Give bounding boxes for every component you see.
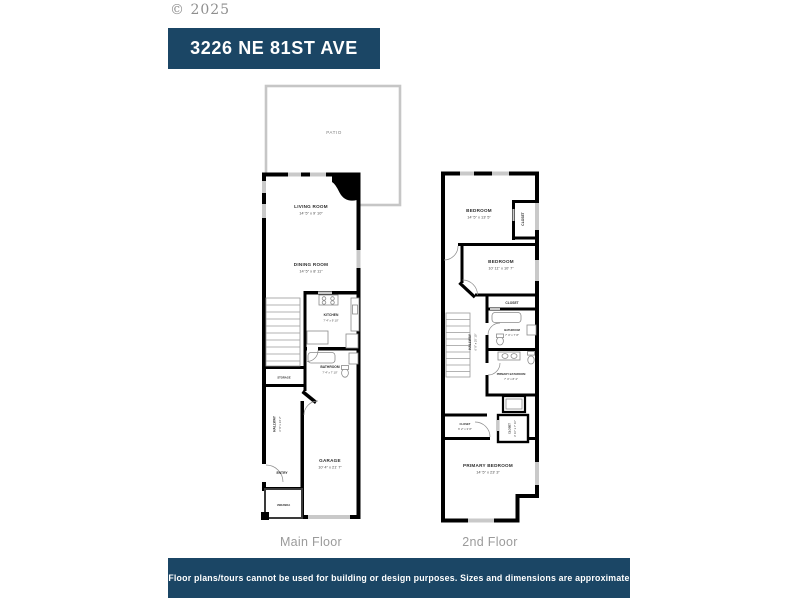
entry-label: ENTRY bbox=[276, 471, 288, 475]
living-room-dims: 14' 5" x 9' 10" bbox=[299, 211, 323, 216]
primary-bathroom-dims: 7' 4" x 8' 4" bbox=[504, 377, 518, 381]
bedroom1-dims: 14' 5" x 13' 5" bbox=[467, 215, 491, 220]
address-banner: 3226 NE 81ST AVE bbox=[168, 28, 380, 69]
main-floor-plan: PATIO bbox=[258, 84, 406, 530]
storage-label: STORAGE bbox=[277, 376, 290, 380]
kitchen-label: KITCHEN bbox=[324, 313, 339, 317]
closet4-dims: 3' 10" x 7' 10" bbox=[513, 420, 517, 437]
disclaimer-text: Floor plans/tours cannot be used for bui… bbox=[168, 573, 629, 583]
stairs-second bbox=[446, 313, 470, 377]
bathroom-dims: 7' 4" x 7' 10" bbox=[322, 371, 337, 375]
hallway2-label: HALLWAY bbox=[468, 333, 472, 350]
bedroom1-label: BEDROOM bbox=[466, 208, 492, 213]
floor-plan-page: © 2025 3226 NE 81ST AVE PATIO bbox=[0, 0, 800, 600]
second-floor-plan: BEDROOM 14' 5" x 13' 5" CLOSET BEDROOM 1… bbox=[440, 170, 540, 528]
copyright-text: © 2025 bbox=[170, 2, 230, 18]
living-room-label: LIVING ROOM bbox=[294, 204, 328, 209]
hallway-dims: 6' 9" x 34' 2" bbox=[278, 416, 282, 431]
floor-label-main: Main Floor bbox=[251, 535, 371, 549]
bathroom2-label: BATHROOM bbox=[504, 328, 520, 332]
hallway-label: HALLWAY bbox=[273, 415, 277, 432]
floor-label-second: 2nd Floor bbox=[430, 535, 550, 549]
patio-label: PATIO bbox=[326, 130, 342, 135]
veranda-post bbox=[261, 512, 269, 520]
bathroom-label: BATHROOM bbox=[320, 365, 339, 369]
closet3-label: CLOSET bbox=[460, 422, 471, 426]
primary-bedroom-dims: 14' 5" x 23' 3" bbox=[476, 470, 500, 475]
kitchen-dims: 7' 4" x 9' 10" bbox=[323, 319, 338, 323]
dining-room-dims: 14' 5" x 8' 11" bbox=[299, 269, 323, 274]
garage-dims: 10' 4" x 21' 7" bbox=[318, 465, 342, 470]
garage-door bbox=[308, 515, 350, 519]
garage-label: GARAGE bbox=[319, 458, 341, 463]
closet1-label: CLOSET bbox=[521, 212, 525, 225]
bathroom2-dims: 7' 4" x 7' 8" bbox=[505, 333, 519, 337]
hallway2-dims: 6' 9" x 25' 10" bbox=[474, 334, 478, 351]
veranda-label: VERANDA bbox=[277, 503, 290, 507]
primary-bathroom-label: PRIMARY BATHROOM bbox=[497, 372, 526, 376]
disclaimer-banner: Floor plans/tours cannot be used for bui… bbox=[168, 558, 630, 598]
closet2-label: CLOSET bbox=[505, 301, 518, 305]
bedroom2-dims: 10' 11" x 10' 7" bbox=[488, 266, 514, 271]
stairs-main bbox=[266, 298, 300, 366]
bedroom2-label: BEDROOM bbox=[488, 259, 514, 264]
closet3-dims: 6' 2" x 3' 8" bbox=[458, 427, 472, 431]
dining-room-label: DINING ROOM bbox=[294, 262, 328, 267]
primary-bedroom-label: PRIMARY BEDROOM bbox=[463, 463, 513, 468]
closet4-label: CLOSET bbox=[508, 423, 512, 434]
address-text: 3226 NE 81ST AVE bbox=[190, 38, 358, 59]
